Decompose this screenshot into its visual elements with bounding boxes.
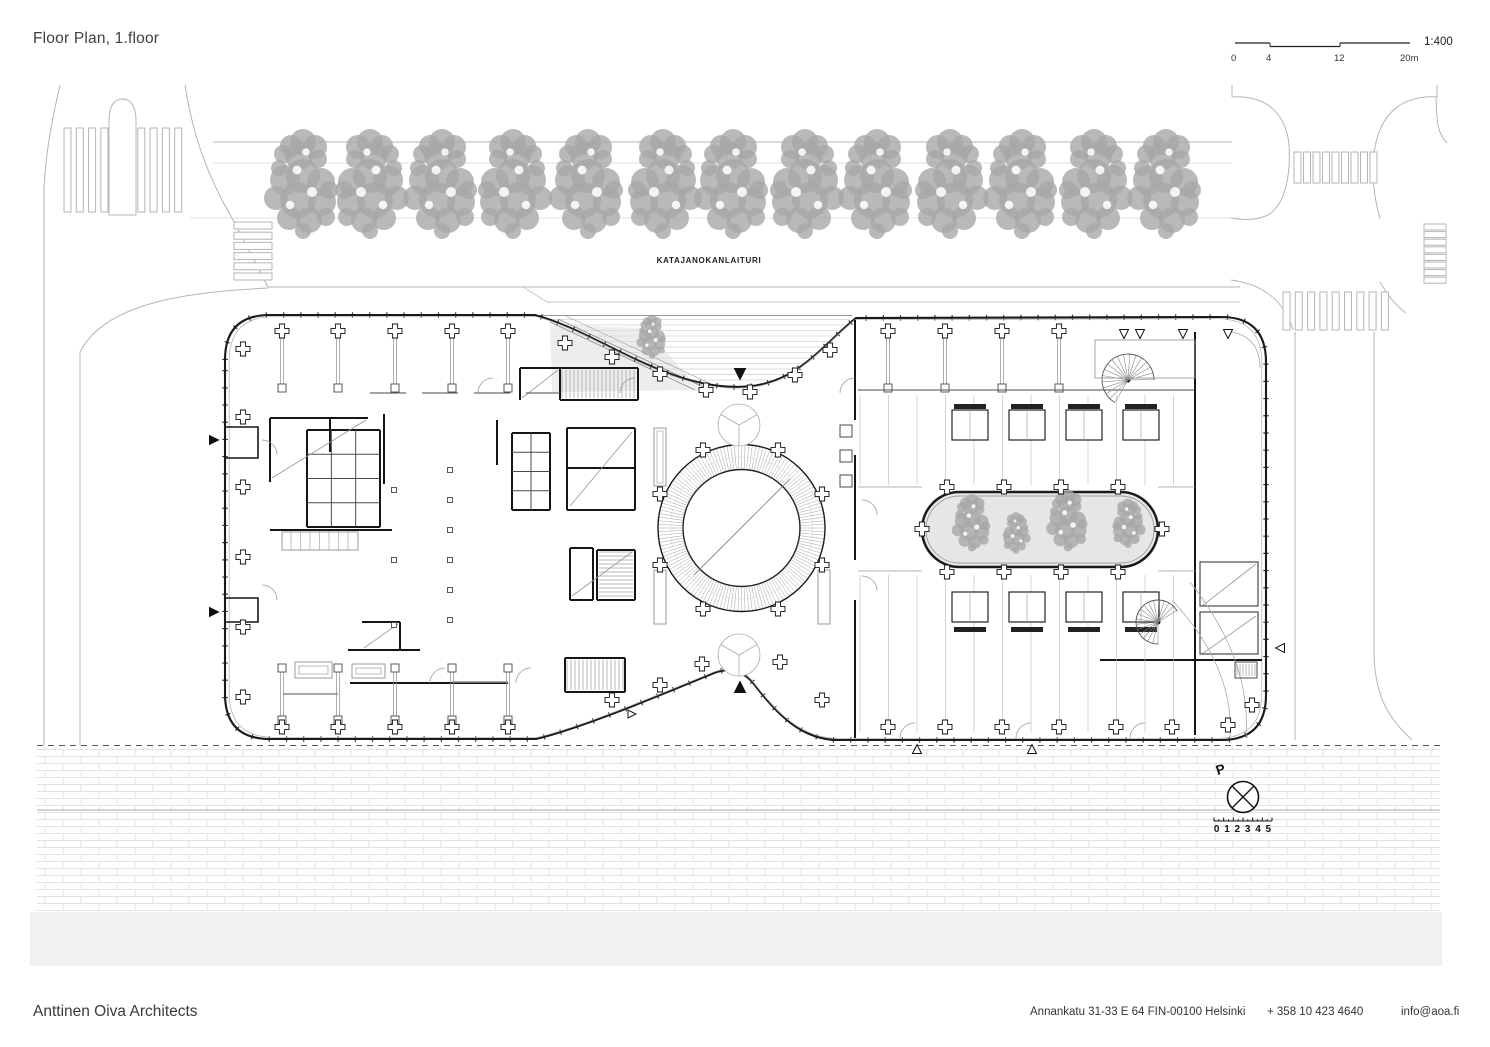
- floor-plan-drawing: [0, 0, 1490, 1047]
- footer-address: Annankatu 31-33 E 64 FIN-00100 Helsinki: [1030, 1006, 1245, 1018]
- footer-email: info@aoa.fi: [1401, 1006, 1459, 1018]
- street-name-label: KATAJANOKANLAITURI: [639, 256, 779, 265]
- footer-studio-name: Anttinen Oiva Architects: [33, 1003, 198, 1021]
- scale-tick-4: 4: [1266, 53, 1271, 64]
- scale-tick-0: 0: [1231, 53, 1236, 64]
- drawing-sheet: Floor Plan, 1.floor 1:400 0 4 12 20m KAT…: [0, 0, 1490, 1047]
- scale-ratio-label: 1:400: [1424, 36, 1453, 48]
- sheet-title: Floor Plan, 1.floor: [33, 30, 159, 48]
- compass-ruler-numbers: 0 1 2 3 4 5: [1206, 824, 1280, 835]
- footer-phone: + 358 10 423 4640: [1267, 1006, 1363, 1018]
- scale-tick-12: 12: [1334, 53, 1345, 64]
- scale-tick-20m: 20m: [1400, 53, 1418, 64]
